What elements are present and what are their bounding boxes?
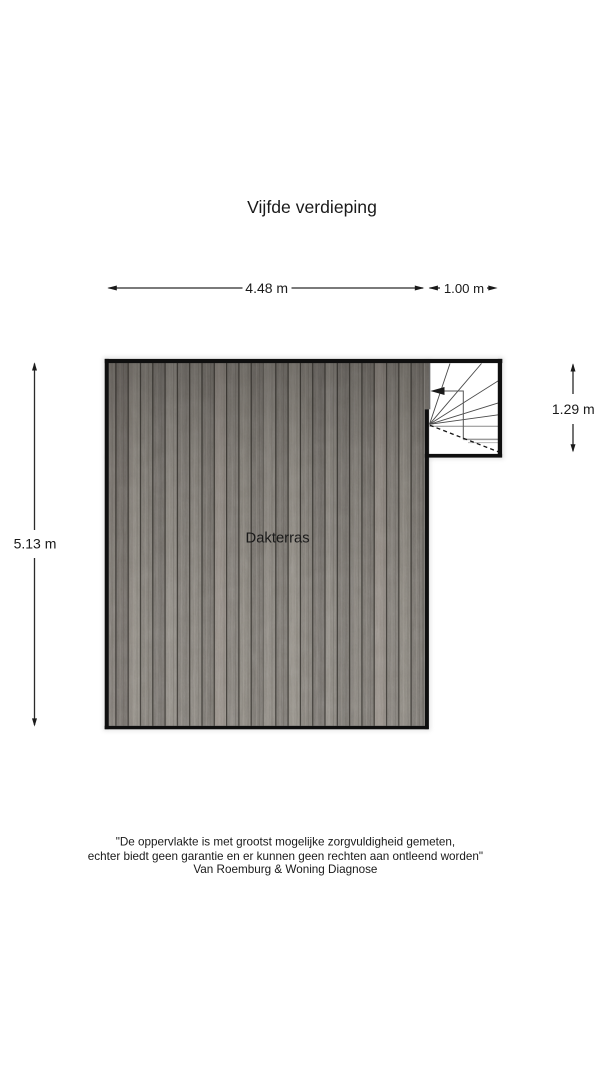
- svg-text:4.48 m: 4.48 m: [245, 280, 288, 296]
- svg-text:Vijfde verdieping: Vijfde verdieping: [247, 197, 377, 217]
- svg-text:1.00 m: 1.00 m: [444, 281, 484, 296]
- svg-text:Dakterras: Dakterras: [246, 530, 310, 546]
- svg-text:"De oppervlakte is met grootst: "De oppervlakte is met grootst mogelijke…: [116, 836, 455, 849]
- svg-text:1.29 m: 1.29 m: [552, 401, 595, 417]
- svg-text:Van Roemburg & Woning Diagnose: Van Roemburg & Woning Diagnose: [193, 863, 377, 876]
- svg-text:5.13 m: 5.13 m: [14, 536, 57, 552]
- svg-text:echter biedt geen garantie en: echter biedt geen garantie en er kunnen …: [88, 850, 483, 863]
